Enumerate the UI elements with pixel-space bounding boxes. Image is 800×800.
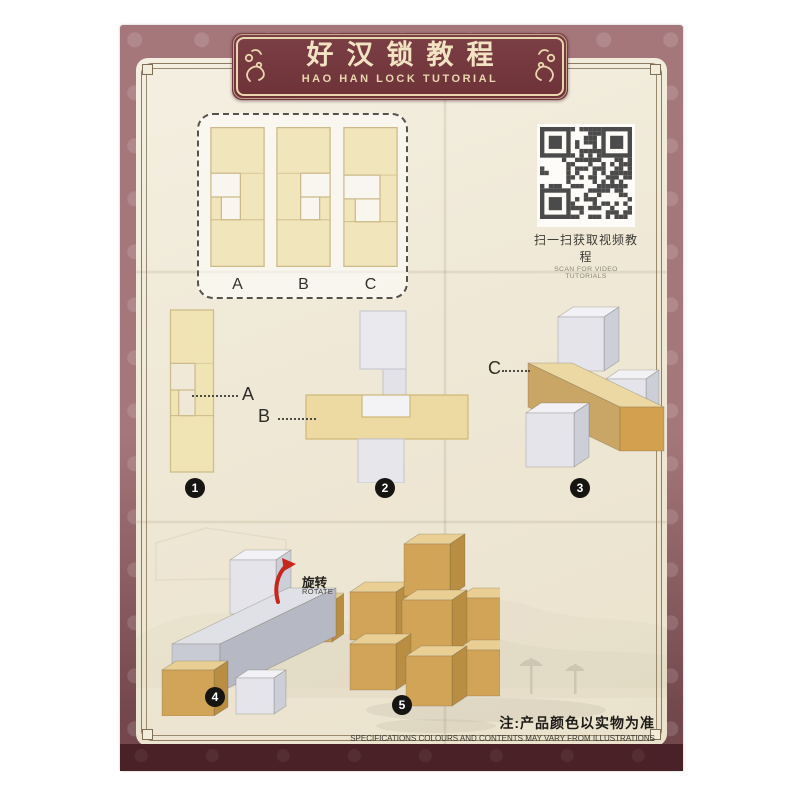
step-3-badge: 3 <box>570 478 590 498</box>
paper-fold-crease-horizontal <box>136 520 667 524</box>
qr-code <box>537 124 635 227</box>
step-2-badge: 2 <box>375 478 395 498</box>
piece-c-illustration <box>342 124 399 270</box>
step-3-illustration <box>486 301 666 481</box>
step-5-illustration <box>324 532 500 716</box>
step-5-badge: 5 <box>392 695 412 715</box>
qr-block: 扫一扫获取视频教程 SCAN FOR VIDEO TUTORIALS <box>534 124 638 280</box>
piece-b-illustration <box>275 124 332 270</box>
step-4-badge: 4 <box>205 687 225 707</box>
piece-a-label: A <box>209 276 266 294</box>
piece-c-label: C <box>342 276 399 294</box>
rotate-arrow-icon <box>272 558 298 604</box>
callout-letter-b: B <box>258 406 270 427</box>
qr-caption-en: SCAN FOR VIDEO TUTORIALS <box>534 266 638 280</box>
callout-letter-c: C <box>488 358 501 379</box>
piece-c: C <box>342 124 399 294</box>
step-1-badge: 1 <box>185 478 205 498</box>
step-1-illustration <box>168 308 216 474</box>
piece-b: B <box>275 124 332 294</box>
footer-note: 注:产品颜色以实物为准 SPECIFICATIONS COLOURS AND C… <box>350 713 655 743</box>
frame-corner-ornament <box>142 64 153 75</box>
callout-line-a <box>192 395 238 397</box>
frame-corner-ornament <box>650 64 661 75</box>
instruction-sheet-photo: A B C <box>120 25 683 771</box>
step-2-illustration <box>296 303 476 483</box>
page-title: 好汉锁教程 <box>232 41 568 71</box>
callout-line-c <box>502 370 530 372</box>
page-subtitle: HAO HAN LOCK TUTORIAL <box>232 73 568 85</box>
title-banner: 好汉锁教程 HAO HAN LOCK TUTORIAL <box>232 33 568 100</box>
paper-panel: A B C <box>136 58 667 746</box>
frame-corner-ornament <box>142 729 153 740</box>
callout-line-b <box>278 418 316 420</box>
piece-b-label: B <box>275 276 332 294</box>
piece-a: A <box>209 124 266 294</box>
step-4-illustration <box>144 534 344 716</box>
callout-letter-a: A <box>242 384 254 405</box>
piece-a-illustration <box>209 124 266 270</box>
footer-note-cn: 注:产品颜色以实物为准 <box>350 713 655 733</box>
qr-caption-cn: 扫一扫获取视频教程 <box>534 231 638 265</box>
parts-overview-box: A B C <box>197 113 408 299</box>
bottom-border-band <box>120 744 683 771</box>
footer-note-en: SPECIFICATIONS COLOURS AND CONTENTS MAY … <box>350 734 655 743</box>
